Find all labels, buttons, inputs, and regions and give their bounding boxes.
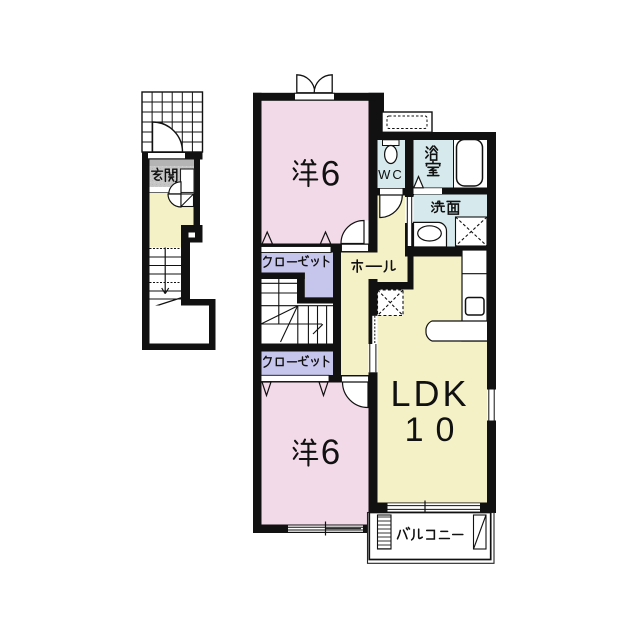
- svg-text:WC: WC: [378, 167, 404, 182]
- svg-text:6: 6: [321, 433, 340, 472]
- svg-text:10: 10: [405, 411, 467, 449]
- svg-text:6: 6: [321, 155, 340, 194]
- svg-text:LDK: LDK: [390, 373, 469, 414]
